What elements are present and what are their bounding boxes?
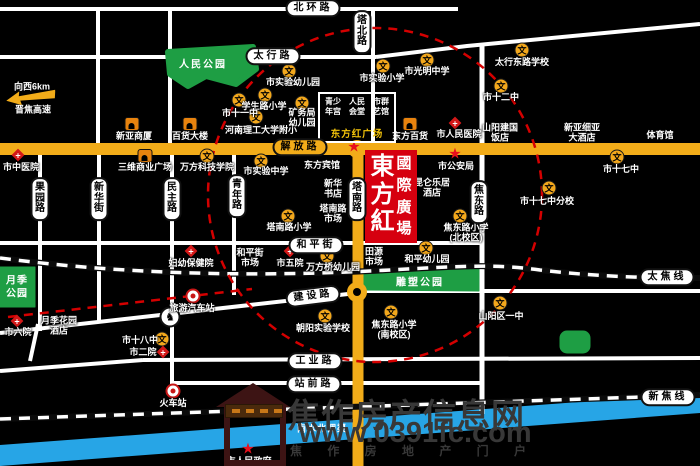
poi-label-line: 焦东路小学 (371, 320, 416, 330)
landmark-dongfanghong-plaza: 東方紅 國際廣場 (365, 150, 417, 243)
road-label-pill: 和平街 (289, 236, 344, 254)
poi-label-line: 焦东路小学 (443, 223, 488, 233)
poi-label: 月季花园酒店 (41, 316, 77, 337)
park-label-line: 公园 (6, 288, 28, 301)
hospital-icon (185, 245, 198, 258)
poi-label: 火车站 (159, 398, 186, 408)
school-icon: 文 (384, 305, 399, 320)
poi-label: 东方百货 (392, 131, 428, 141)
hospital-icon (11, 315, 24, 328)
planned-road-dashed (8, 289, 252, 317)
poi-label: 市二院 (129, 347, 156, 357)
road-label-pill: 塔北路 (353, 10, 372, 54)
poi-label: 河南理工大学附小 (225, 125, 297, 135)
square-caption: 东方红广场 (320, 126, 394, 140)
venue-people-hall: 人民 会堂 (349, 97, 365, 116)
poi-label: 市十八中 (122, 335, 158, 345)
poi-label: 山阳区一中 (478, 311, 523, 321)
poi-label-line: 市场 (365, 257, 383, 267)
road-label-pill: 民主路 (163, 177, 182, 221)
poi-label-line: 昆仑乐居 (414, 178, 450, 188)
road-label-pill: 工业路 (288, 352, 343, 370)
venue-art-gallery: 市群 艺馆 (373, 97, 389, 116)
school-icon: 文 (493, 296, 508, 311)
poi-label-line: 月季花园 (41, 316, 77, 326)
poi-label: 塔南路小学 (266, 222, 311, 232)
poi-label: 山阳建国饭店 (482, 123, 518, 144)
poi-label-line: 酒店 (414, 188, 450, 198)
poi-label: 市公安局 (438, 161, 474, 171)
poi-label: 矿务局幼儿园 (288, 108, 315, 129)
road-label-pill: 站前路 (287, 375, 342, 393)
poi-label: 新华书店 (324, 179, 342, 200)
poi-label: 万方桥幼儿园 (306, 262, 360, 272)
venue-line: 会堂 (349, 107, 365, 117)
poi-label: 市实验中学 (243, 166, 288, 176)
park-label-line: 月季 (6, 276, 28, 289)
poi-label: 和平街市场 (236, 248, 263, 269)
railways (0, 258, 700, 419)
poi-label: 昆仑乐居酒店 (414, 178, 450, 199)
poi-label-line: 市场 (236, 258, 263, 268)
poi-label: 市中医院 (3, 162, 39, 172)
poi-label: 体育馆 (646, 130, 673, 140)
store-door-icon (406, 123, 412, 129)
dongfanghong-square-box: 青少 年宫 人民 会堂 市群 艺馆 东方红广场 (318, 92, 396, 143)
park-small-green (560, 331, 590, 353)
store-door-icon (128, 123, 134, 129)
venue-line: 人民 (349, 97, 365, 107)
park-label-renmin: 人民公园 (179, 56, 227, 71)
poi-label: 朝阳实验学校 (296, 323, 350, 333)
road-gongyelu-east (143, 358, 700, 360)
venue-line: 艺馆 (373, 107, 389, 117)
store-building-icon (125, 117, 140, 131)
poi-label: 太行东路学校 (495, 57, 549, 67)
store-building-icon (183, 117, 198, 131)
road-label-pill: 塔南路 (348, 177, 367, 221)
school-icon: 文 (542, 181, 557, 196)
road-label-pill: 北环路 (286, 0, 341, 17)
hospital-icon (449, 117, 462, 130)
star-icon: ★ (448, 147, 461, 162)
poi-label-line: 酒店 (41, 326, 77, 336)
map-canvas: 東方紅 國際廣場 青少 年宫 人民 会堂 市群 艺馆 东方红广场 人民公园 月季… (0, 0, 700, 466)
poi-label: 市光明中学 (404, 66, 449, 76)
poi-label: 焦东路小学(北校区) (443, 223, 488, 244)
poi-label: 市人民政府 (226, 456, 271, 466)
poi-label-line: 矿务局 (288, 108, 315, 118)
poi-label-line: (北校区) (443, 233, 488, 243)
landmark-title: 東方紅 (370, 150, 396, 243)
road-label-pill: 新焦线 (641, 388, 696, 406)
poi-label: 新亚商厦 (116, 131, 152, 141)
road-label-pill: 太行路 (246, 47, 301, 65)
park-label-diaosu: 雕塑公园 (396, 274, 444, 289)
station-dot-icon (191, 294, 196, 299)
park-label-yueji: 月季 公园 (6, 276, 28, 301)
poi-label-line: 大酒店 (564, 133, 600, 143)
school-icon: 文 (610, 150, 625, 165)
poi-label: 市实验幼儿园 (266, 77, 320, 87)
poi-label: 万方科技学院 (180, 162, 234, 172)
store-door-icon (186, 123, 192, 129)
poi-label: 市十七中分校 (520, 196, 574, 206)
poi-label: 旅游汽车站 (169, 303, 214, 313)
square-venues: 青少 年宫 人民 会堂 市群 艺馆 (320, 94, 394, 116)
poi-label-line: 塔南路 (319, 204, 346, 214)
road-gongyelu-west (0, 360, 143, 371)
poi-label: 市十一中 (222, 108, 258, 118)
poi-label-line: 市场 (319, 214, 346, 224)
direction-highway-label: 晋焦高速 (15, 103, 51, 116)
poi-label: 三维商业广场 (118, 162, 172, 172)
poi-label: 百货大楼 (172, 131, 208, 141)
roundabout-jianshe-center (353, 288, 361, 296)
poi-label: 新亚细亚大酒店 (564, 123, 600, 144)
poi-label: 和平幼儿园 (404, 254, 449, 264)
venue-line: 青少 (325, 97, 341, 107)
venue-youth-palace: 青少 年宫 (325, 97, 341, 116)
poi-label-line: (南校区) (371, 330, 416, 340)
poi-label: 市十二中 (483, 92, 519, 102)
poi-label: 市五院 (276, 258, 303, 268)
road-label-pill: 焦东路 (470, 180, 489, 224)
poi-label: 塔南路市场 (319, 204, 346, 225)
poi-label-line: 新华 (324, 179, 342, 189)
poi-label: 市人民医院 (436, 129, 481, 139)
school-icon: 文 (318, 309, 333, 324)
road-label-pill: 解放路 (273, 138, 328, 156)
poi-label: 市实验小学 (359, 73, 404, 83)
store-building-icon (403, 117, 418, 131)
poi-label-line: 和平街 (236, 248, 263, 258)
poi-label: 东方宾馆 (304, 160, 340, 170)
road-label-pill: 果园路 (31, 177, 50, 221)
road-label-pill: 太焦线 (640, 268, 695, 286)
hospital-icon (157, 346, 170, 359)
venue-line: 年宫 (325, 107, 341, 117)
poi-label-line: 幼儿园 (288, 118, 315, 128)
station-icon (166, 384, 181, 399)
poi-label: 市六院 (4, 327, 31, 337)
store-door-icon (141, 155, 147, 161)
poi-label-line: 新亚细亚 (564, 123, 600, 133)
river-label: 南水北调渠 (297, 422, 347, 435)
school-icon: 文 (515, 43, 530, 58)
map-geometry (0, 0, 700, 466)
venue-line: 市群 (373, 97, 389, 107)
road-label-pill: 新华街 (90, 177, 109, 221)
river-channel (0, 393, 700, 466)
star-icon: ★ (241, 442, 254, 457)
station-icon (186, 289, 201, 304)
poi-label: 市十七中 (603, 164, 639, 174)
school-icon: 文 (376, 59, 391, 74)
poi-label: 焦东路小学(南校区) (371, 320, 416, 341)
direction-distance-label: 向西6km (14, 80, 50, 93)
school-icon: 文 (453, 209, 468, 224)
poi-label-line: 饭店 (482, 133, 518, 143)
poi-label-line: 书店 (324, 189, 342, 199)
station-dot-icon (171, 389, 176, 394)
poi-label-line: 山阳建国 (482, 123, 518, 133)
hospital-icon (12, 149, 25, 162)
poi-label: 田源市场 (365, 247, 383, 268)
road-label-pill: 青年路 (228, 174, 247, 218)
poi-label: 妇幼保健院 (168, 258, 213, 268)
poi-label-line: 田源 (365, 247, 383, 257)
landmark-subtitle: 國際廣場 (396, 150, 413, 243)
